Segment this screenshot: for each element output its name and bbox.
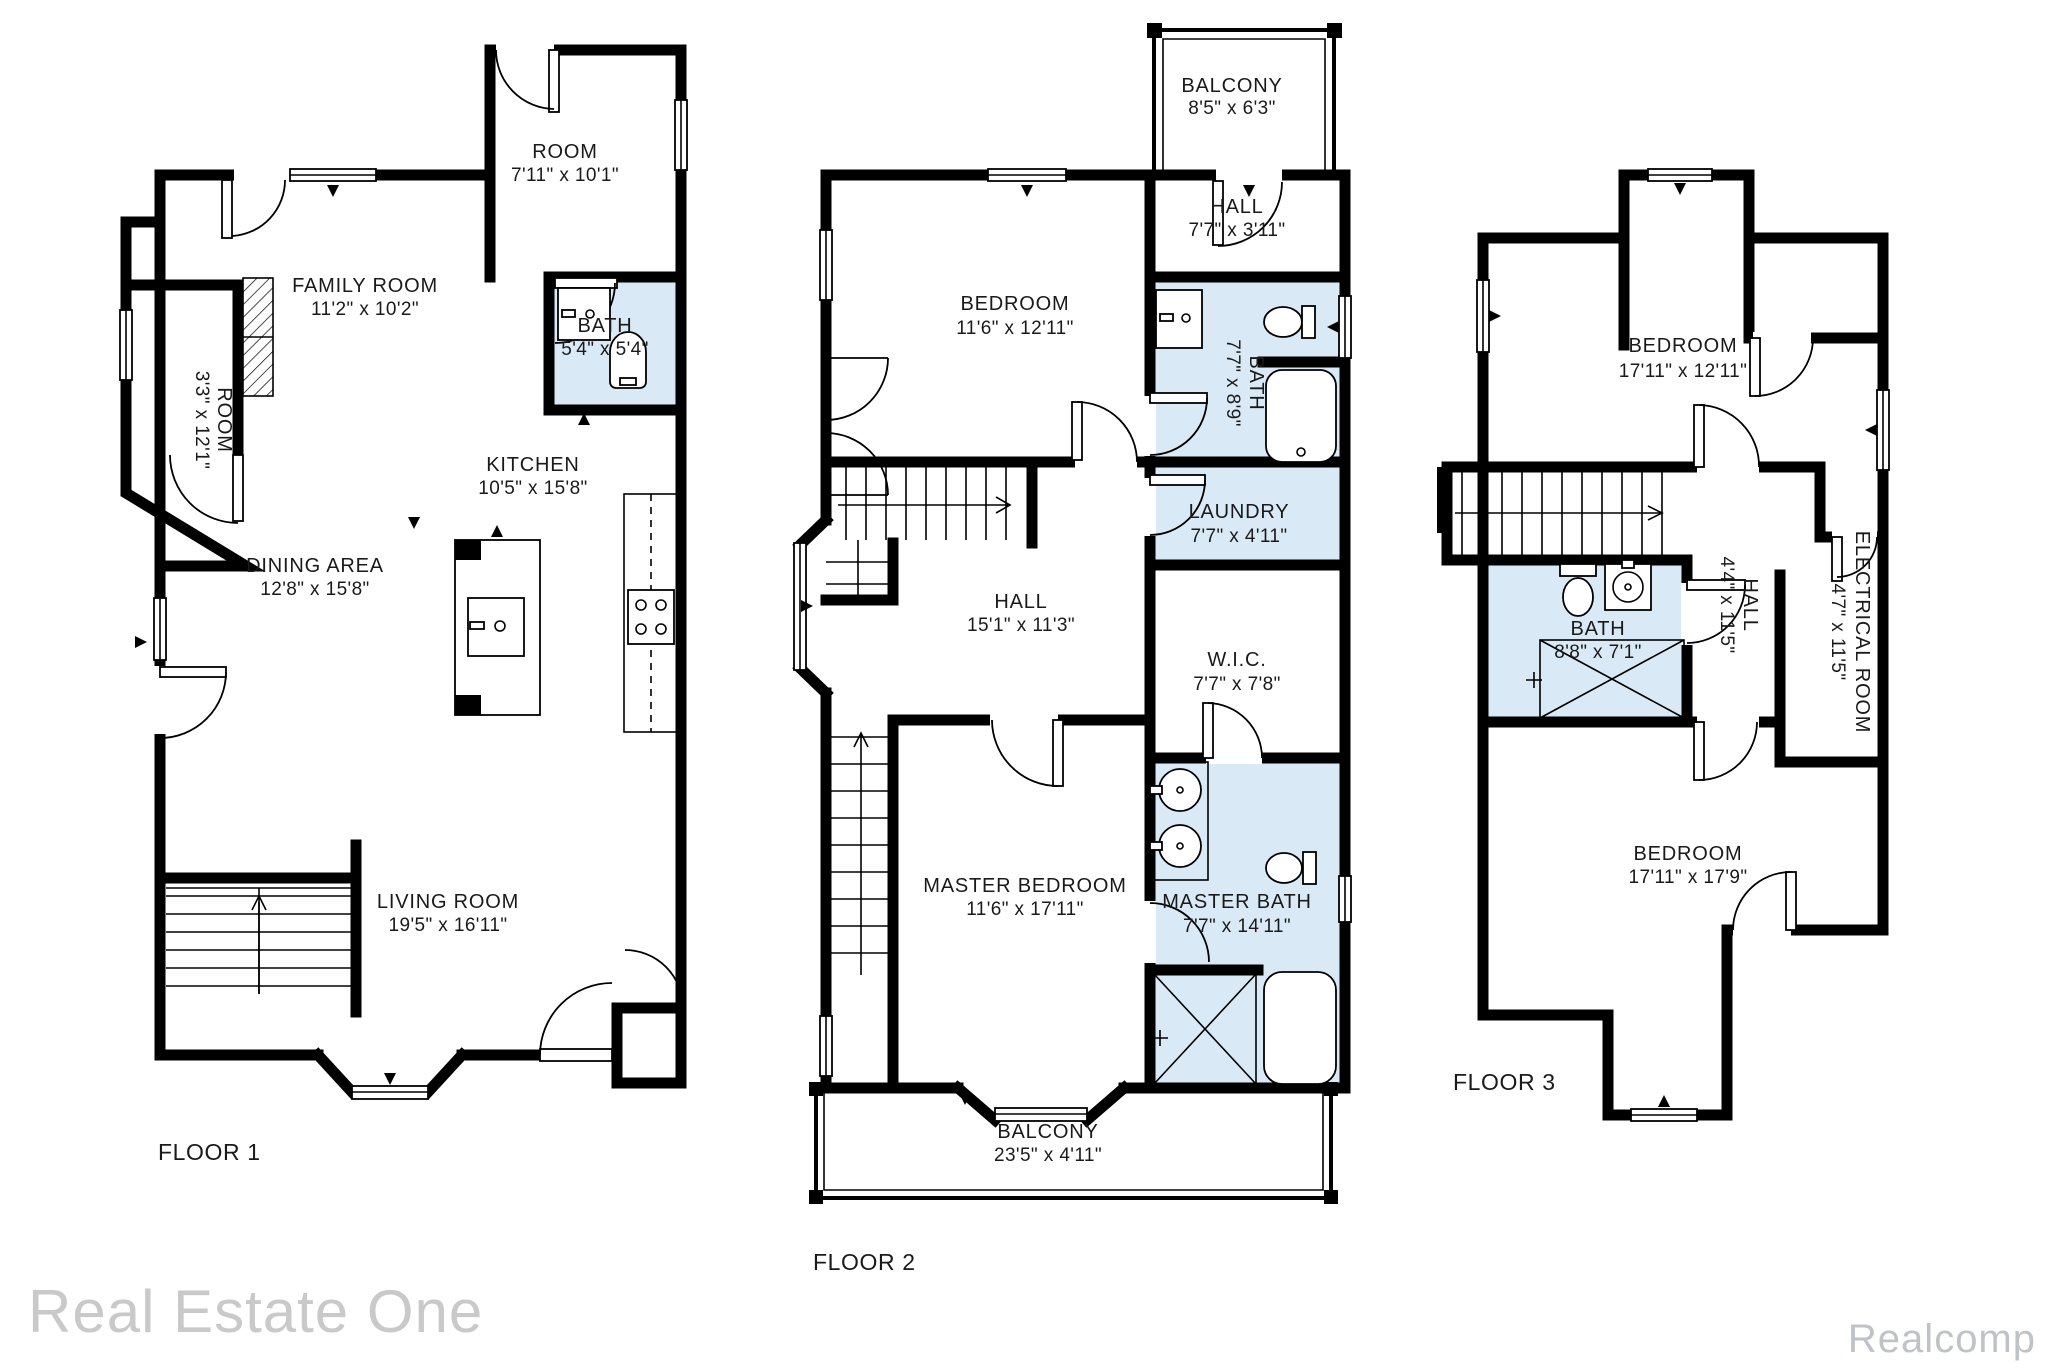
floor1-dining-door-arc xyxy=(160,672,226,738)
floor1-family-door-leaf xyxy=(222,180,232,238)
dimension-tick xyxy=(1658,1095,1670,1107)
floor2-master-bath-door-gap xyxy=(1144,901,1156,963)
floor2-laundry-dims: 7'7" x 4'11" xyxy=(1190,526,1287,547)
floor2-hall-top-label: HALL xyxy=(1210,196,1263,218)
floor2-wic-door-gap xyxy=(1206,752,1262,764)
floor1-small-room-dims: 3'3" x 12'1" xyxy=(191,371,212,469)
floor2-window-right-bath xyxy=(1339,296,1351,358)
floor1-family-door-arc xyxy=(232,180,285,236)
floor2-balcony-door-gap xyxy=(1216,169,1282,181)
floor-plan-page: ROOM 7'11" x 10'1" FAMILY ROOM 11'2" x 1… xyxy=(0,0,2048,1368)
floor3-bath-sink xyxy=(1605,560,1651,610)
floor1-kitchen-dims: 10'5" x 15'8" xyxy=(478,478,587,499)
floor2-laundry-door-gap xyxy=(1144,478,1156,536)
floor1-stairs xyxy=(166,888,352,994)
floor3-bedroom1-dims: 17'11" x 12'11" xyxy=(1619,361,1748,382)
floor1-room-dims: 7'11" x 10'1" xyxy=(511,165,619,186)
floor2-master-bath-label: MASTER BATH xyxy=(1162,891,1312,913)
floor2-window-right-masterbath xyxy=(1339,876,1351,922)
floor1-window-room-right xyxy=(675,100,687,170)
floor2-balcony-bottom-label: BALCONY xyxy=(997,1121,1098,1143)
floor3-bedroom1-label: BEDROOM xyxy=(1629,335,1738,357)
floor1-living-dims: 19'5" x 16'11" xyxy=(389,915,508,936)
floor1-dining-door-leaf xyxy=(160,667,226,677)
floor2-bedroom-dims: 11'6" x 12'11" xyxy=(956,318,1074,339)
floor1-family-room-label: FAMILY ROOM xyxy=(292,275,438,297)
floor3-bath-label: BATH xyxy=(1570,618,1625,640)
floor2-balcony-top-label: BALCONY xyxy=(1181,75,1282,97)
floor1-kitchen-label: KITCHEN xyxy=(486,454,579,476)
floor3-hall-door-arc xyxy=(1699,722,1757,780)
floor1-small-room-label: ROOM xyxy=(213,387,235,452)
floor2-hall-dims: 15'1" x 11'3" xyxy=(967,615,1075,636)
floor2-wic-door-leaf xyxy=(1203,703,1213,758)
floor1-family-door-gap xyxy=(234,169,292,181)
floor3-title: FLOOR 3 xyxy=(1453,1069,1556,1095)
floor2-bath-tub xyxy=(1266,370,1336,462)
floor3-closet-door-arc xyxy=(1755,338,1813,396)
floor-plan-drawing: ROOM 7'11" x 10'1" FAMILY ROOM 11'2" x 1… xyxy=(0,0,2048,1368)
floor2-bath-toilet xyxy=(1264,306,1315,338)
floor2-wic-dims: 7'7" x 7'8" xyxy=(1193,674,1280,695)
floor1-dining-dims: 12'8" x 15'8" xyxy=(260,579,369,600)
floor2-hall-top-dims: 7'7" x 3'11" xyxy=(1188,220,1285,241)
floor2-bottom-balcony xyxy=(809,1082,1338,1204)
floor1-bay-window xyxy=(352,1086,428,1099)
dimension-tick xyxy=(491,525,503,537)
floor2-bay-window-bottom xyxy=(995,1108,1087,1121)
floor2-hall-door-gap xyxy=(990,714,1058,726)
floor3-closet-door-leaf xyxy=(1750,338,1760,396)
floor3-hall-label: HALL xyxy=(1739,578,1761,631)
floor1-window-top xyxy=(290,169,376,181)
floor2-bath-dims: 7'7" x 8'9" xyxy=(1222,339,1243,426)
floor2-master-tub xyxy=(1264,972,1336,1084)
floor1-front-door xyxy=(540,1049,612,1061)
floor1-bath-door-leaf xyxy=(555,278,617,288)
floor2-wic-label: W.I.C. xyxy=(1207,649,1266,671)
floor1-window-left-upper xyxy=(120,310,132,380)
floor2-bedroom-door-leaf xyxy=(1072,402,1082,460)
dimension-tick xyxy=(408,517,420,529)
floor2-laundry-door-leaf xyxy=(1150,475,1205,485)
floor-2-plan: BALCONY 8'5" x 6'3" HALL 7'7" x 3'11" BE… xyxy=(794,23,1351,1275)
floor3-bedroom2-label: BEDROOM xyxy=(1634,843,1743,865)
floor2-stairs-up xyxy=(826,467,1010,600)
floor3-dormer-window xyxy=(1648,169,1712,181)
floor3-bedroom1-door-arc xyxy=(1699,405,1759,467)
floor2-laundry-label: LAUNDRY xyxy=(1189,501,1290,523)
floor2-master-toilet xyxy=(1266,852,1316,884)
watermark-real-estate-one: Real Estate One xyxy=(28,1278,483,1345)
floor3-electrical-door-leaf xyxy=(1832,537,1842,581)
dimension-tick xyxy=(1865,424,1877,436)
floor1-title: FLOOR 1 xyxy=(158,1139,261,1165)
floor1-vestibule-door-arc xyxy=(625,950,683,1008)
floor3-bedroom2-door-leaf xyxy=(1786,872,1796,930)
floor2-bath-door-leaf xyxy=(1150,393,1207,403)
floor2-hall-door-arc xyxy=(992,720,1058,786)
floor2-window-left-lower xyxy=(820,1016,832,1076)
watermark-realcomp: Realcomp xyxy=(1848,1317,2036,1361)
floor-1-plan: ROOM 7'11" x 10'1" FAMILY ROOM 11'2" x 1… xyxy=(120,44,687,1165)
floor1-room-door-gap xyxy=(496,44,554,56)
floor3-bedroom1-door-gap xyxy=(1697,461,1759,473)
floor3-bedroom2-top-door-gap xyxy=(1697,716,1759,728)
dimension-tick xyxy=(327,185,339,197)
floor3-window-bottom xyxy=(1631,1109,1697,1121)
floor-3-plan: BEDROOM 17'11" x 12'11" BATH 8'8" x 7'1"… xyxy=(1437,169,1889,1121)
floor2-wic-door-arc xyxy=(1208,703,1262,758)
floor3-bedroom2-dims: 17'11" x 17'9" xyxy=(1629,867,1748,888)
floor2-bath-label: BATH xyxy=(1245,355,1267,410)
floor3-window-right xyxy=(1877,390,1889,470)
dimension-tick xyxy=(1489,310,1501,322)
floor1-window-left-lower xyxy=(154,598,166,660)
floor2-stairs-down xyxy=(828,733,893,975)
floor3-bath-toilet xyxy=(1560,564,1596,616)
floor2-hall-door-leaf xyxy=(1053,720,1063,786)
floor1-bath-label: BATH xyxy=(577,315,632,337)
floor2-window-top xyxy=(988,169,1066,181)
floor1-room-label: ROOM xyxy=(532,141,597,163)
floor2-master-bath-dims: 7'7" x 14'11" xyxy=(1183,916,1291,937)
floor2-closet-door-arc-1 xyxy=(826,358,888,420)
floor1-kitchen-island xyxy=(455,540,540,715)
floor1-kitchen-counter xyxy=(624,494,678,732)
dimension-tick xyxy=(1674,183,1686,195)
floor3-bath-door-gap xyxy=(1681,583,1693,645)
floor1-dining-label: DINING AREA xyxy=(246,555,384,577)
floor1-small-room-door-leaf xyxy=(233,455,243,521)
floor2-bedroom-door-gap xyxy=(1075,456,1137,468)
floor1-living-label: LIVING ROOM xyxy=(377,891,519,913)
floor1-family-room-dims: 11'2" x 10'2" xyxy=(311,299,419,320)
floor2-balcony-bottom-dims: 23'5" x 4'11" xyxy=(994,1145,1102,1166)
floor2-bedroom-door-arc xyxy=(1077,402,1137,462)
floor1-bath-dims: 5'4" x 5'4" xyxy=(561,339,648,360)
floor3-electrical-dims: 4'7" x 11'5" xyxy=(1827,583,1848,680)
floor3-hall-dims: 4'4" x 11'5" xyxy=(1716,556,1737,653)
floor3-window-left xyxy=(1477,280,1489,352)
floor2-hall-label: HALL xyxy=(994,591,1047,613)
dimension-tick xyxy=(384,1073,396,1085)
floor1-entry-door-arc xyxy=(540,983,612,1055)
floor3-hall-door-leaf xyxy=(1694,722,1704,780)
dimension-tick xyxy=(135,636,147,648)
dimension-tick xyxy=(1021,185,1033,197)
floor2-bath-door-gap xyxy=(1144,396,1156,456)
floor2-bath-sink xyxy=(1156,290,1202,348)
floor2-window-left-bedroom xyxy=(820,230,832,300)
floor1-room-door-leaf xyxy=(549,50,559,112)
floor3-stair-wall-block xyxy=(1437,467,1449,533)
floor2-title: FLOOR 2 xyxy=(813,1249,916,1275)
floor2-master-bedroom-label: MASTER BEDROOM xyxy=(923,875,1126,897)
floor3-bedroom1-door-leaf xyxy=(1694,405,1704,467)
dimension-tick xyxy=(801,600,813,612)
floor2-bedroom-label: BEDROOM xyxy=(961,293,1070,315)
floor3-bath-dims: 8'8" x 7'1" xyxy=(1554,642,1641,663)
floor3-bedroom2-side-door-gap xyxy=(1733,924,1791,936)
floor2-balcony-top-dims: 8'5" x 6'3" xyxy=(1188,98,1275,119)
floor3-closet-door-gap xyxy=(1753,332,1811,344)
floor2-master-bedroom-dims: 11'6" x 17'11" xyxy=(966,899,1084,920)
floor3-electrical-label: ELECTRICAL ROOM xyxy=(1851,531,1873,733)
floor1-room-door-arc xyxy=(496,50,554,109)
